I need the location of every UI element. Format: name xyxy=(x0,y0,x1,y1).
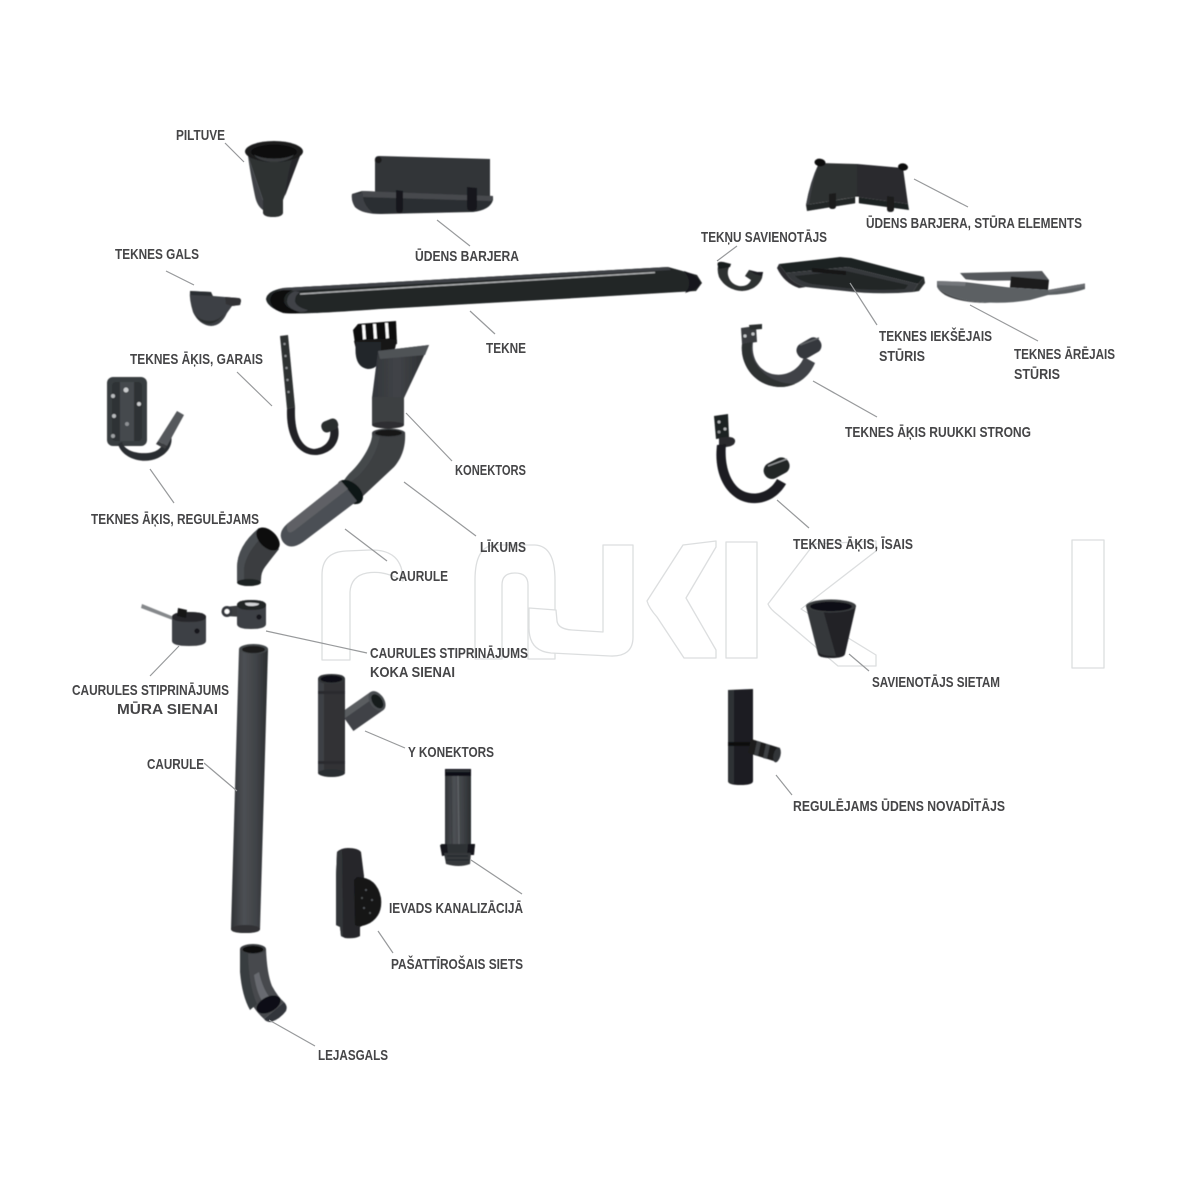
svg-text:TEKNE: TEKNE xyxy=(486,340,526,357)
svg-text:IEVADS KANALIZĀCIJĀ: IEVADS KANALIZĀCIJĀ xyxy=(389,900,523,917)
svg-text:TEKNES IEKŠĒJAIS: TEKNES IEKŠĒJAIS xyxy=(879,327,992,345)
svg-text:LEJASGALS: LEJASGALS xyxy=(318,1047,388,1064)
svg-text:CAURULES STIPRINĀJUMS: CAURULES STIPRINĀJUMS xyxy=(370,645,528,662)
svg-text:PILTUVE: PILTUVE xyxy=(176,127,225,144)
svg-text:STŪRIS: STŪRIS xyxy=(1014,366,1060,383)
svg-text:PAŠATTĪROŠAIS SIETS: PAŠATTĪROŠAIS SIETS xyxy=(391,955,523,973)
svg-text:KONEKTORS: KONEKTORS xyxy=(455,462,526,479)
svg-text:Y KONEKTORS: Y KONEKTORS xyxy=(408,744,494,761)
svg-text:TEKNES GALS: TEKNES GALS xyxy=(115,246,199,263)
svg-text:TEKNES ĀRĒJAIS: TEKNES ĀRĒJAIS xyxy=(1014,346,1115,363)
svg-text:CAURULE: CAURULE xyxy=(390,568,448,585)
svg-text:SAVIENOTĀJS SIETAM: SAVIENOTĀJS SIETAM xyxy=(872,674,1000,691)
svg-text:LĪKUMS: LĪKUMS xyxy=(480,539,526,556)
svg-text:TEKNES ĀĶIS RUUKKI STRONG: TEKNES ĀĶIS RUUKKI STRONG xyxy=(845,424,1031,441)
svg-text:REGULĒJAMS ŪDENS NOVADĪTĀJS: REGULĒJAMS ŪDENS NOVADĪTĀJS xyxy=(793,798,1005,815)
svg-text:TEKNES ĀĶIS, GARAIS: TEKNES ĀĶIS, GARAIS xyxy=(130,351,263,368)
svg-text:ŪDENS BARJERA, STŪRA ELEMENTS: ŪDENS BARJERA, STŪRA ELEMENTS xyxy=(866,215,1082,232)
svg-text:STŪRIS: STŪRIS xyxy=(879,348,925,365)
svg-text:TEKNES ĀĶIS, ĪSAIS: TEKNES ĀĶIS, ĪSAIS xyxy=(793,536,913,553)
svg-text:ŪDENS BARJERA: ŪDENS BARJERA xyxy=(415,248,519,265)
svg-text:CAURULE: CAURULE xyxy=(147,756,204,773)
svg-text:CAURULES STIPRINĀJUMS: CAURULES STIPRINĀJUMS xyxy=(72,682,229,699)
svg-text:TEKNES ĀĶIS, REGULĒJAMS: TEKNES ĀĶIS, REGULĒJAMS xyxy=(91,511,259,528)
svg-text:MŪRA SIENAI: MŪRA SIENAI xyxy=(117,701,218,718)
svg-text:KOKA SIENAI: KOKA SIENAI xyxy=(370,664,455,681)
svg-text:TEKŅU SAVIENOTĀJS: TEKŅU SAVIENOTĀJS xyxy=(701,229,827,246)
